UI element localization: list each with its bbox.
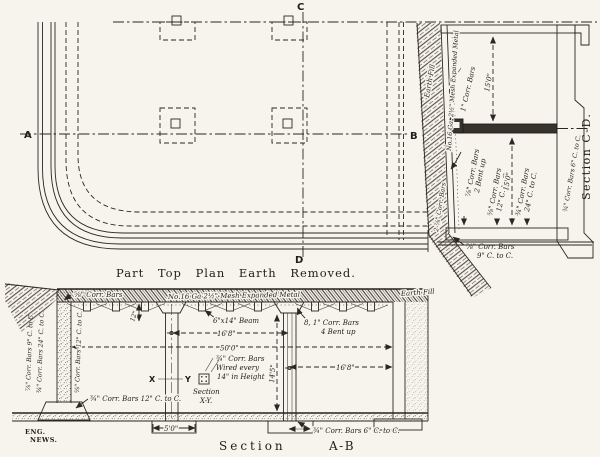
cd-bottom-bars-1: ⅞" Corr. Bars xyxy=(466,243,515,251)
ab-col-note-3: 14" in Height xyxy=(217,373,265,381)
cd-dim-upper: 15'0" xyxy=(483,73,494,93)
cd-middle-floor xyxy=(450,119,588,133)
section-ab: ⅝" Corr. Bars No.16 Ga 2½" Mesh Expanded… xyxy=(5,283,435,453)
ab-wall-bars-24: ¾" Corr. Bars 24" C. to C. xyxy=(36,311,46,393)
ab-dim-slab-depth: 12" xyxy=(129,310,139,323)
cd-bottom-bars-2: 9" C. to C. xyxy=(477,252,513,260)
ab-beam-note: 6"x14" Beam xyxy=(213,317,259,325)
publication-credit: ENG. NEWS. xyxy=(25,428,57,444)
ab-earth-fill-label: Earth Fill xyxy=(400,288,435,298)
ab-slab-bars-label: ⅝" Corr. Bars xyxy=(74,291,123,299)
plan-wall-outlines xyxy=(38,22,428,252)
cd-bars-1in-label: 1" Corr. Bars xyxy=(459,65,477,112)
drawing-sheet: A B C D Part Top Plan Earth Removed. xyxy=(0,0,600,457)
ab-sec-xy-2: X-Y. xyxy=(199,397,212,405)
ab-caption-id: A-B xyxy=(328,439,355,453)
marker-d: D xyxy=(295,255,303,266)
ab-dim-footing: 5'0" xyxy=(164,425,178,433)
section-cd: Earth Fill No.16 Ga. 2½" Mesh Expanded M… xyxy=(416,23,594,298)
ab-col-cut-x: X xyxy=(149,375,156,384)
ab-dim-total: 50'0" xyxy=(220,345,239,353)
ab-floor-bars-12: ¾" Corr. Bars 12" C. to C. xyxy=(90,395,181,403)
ab-floor-bars-6: ¾" Corr. Bars 6" C. to C. xyxy=(313,427,400,435)
cd-section-title: Section C-D. xyxy=(580,113,593,200)
ab-col-cut-y: Y xyxy=(184,375,191,384)
ab-dim-bay2: 16'8" xyxy=(336,364,355,372)
ab-sec-xy-1: Section xyxy=(193,388,220,396)
ab-section-xy-symbol xyxy=(199,374,209,384)
ab-beam-stubs xyxy=(67,302,388,311)
marker-a: A xyxy=(24,130,32,141)
credit-line-2: NEWS. xyxy=(30,436,57,444)
ab-bent-bars-1: 8, 1" Corr. Bars xyxy=(304,319,359,327)
marker-b: B xyxy=(410,131,418,142)
ab-bent-bars-2: 4 Bent up xyxy=(320,328,356,336)
ab-dim-bay1: 16'8" xyxy=(217,330,236,338)
cd-top-slab xyxy=(441,25,575,33)
plan-columns xyxy=(160,16,307,143)
ab-wall-bars-12: ⅝" Corr. Bars 12" C. to C. xyxy=(74,311,84,393)
credit-line-1: ENG. xyxy=(25,428,45,436)
marker-c: C xyxy=(297,2,304,13)
ab-dim-height: 14'5" xyxy=(268,364,277,383)
engineering-drawing: A B C D Part Top Plan Earth Removed. xyxy=(0,0,600,457)
ab-col-note-1: ¾" Corr. Bars xyxy=(216,355,265,363)
ab-caption-word: Section xyxy=(219,439,286,453)
ab-right-wall xyxy=(393,289,428,421)
plan-view: A B C D Part Top Plan Earth Removed. xyxy=(20,2,597,280)
ab-wall-bars-9: ⅞" Corr. Bars 9" C. to C. xyxy=(25,313,35,391)
ab-col-note-2: Wired every xyxy=(216,364,260,372)
plan-caption: Part Top Plan Earth Removed. xyxy=(116,266,356,280)
